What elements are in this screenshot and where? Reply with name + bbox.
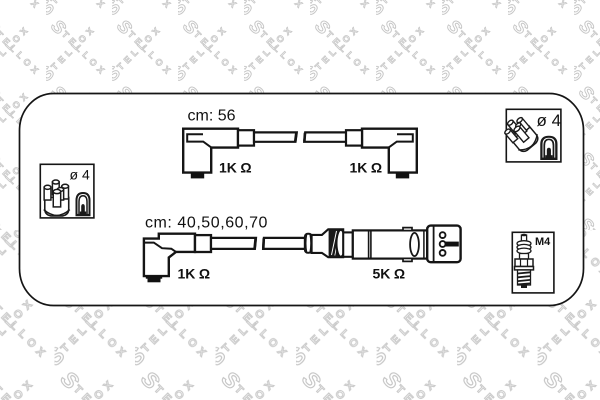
svg-text:cm: 40,50,60,70: cm: 40,50,60,70 bbox=[145, 214, 268, 231]
svg-text:cm: 56: cm: 56 bbox=[188, 108, 236, 125]
svg-text:ø 4: ø 4 bbox=[70, 167, 90, 183]
svg-text:1KΩ: 1KΩ bbox=[178, 266, 211, 282]
svg-text:M4: M4 bbox=[535, 236, 551, 248]
svg-text:5KΩ: 5KΩ bbox=[373, 266, 406, 282]
svg-text:1KΩ: 1KΩ bbox=[350, 160, 383, 176]
svg-text:ø 4: ø 4 bbox=[537, 111, 562, 130]
svg-text:1KΩ: 1KΩ bbox=[219, 160, 252, 176]
